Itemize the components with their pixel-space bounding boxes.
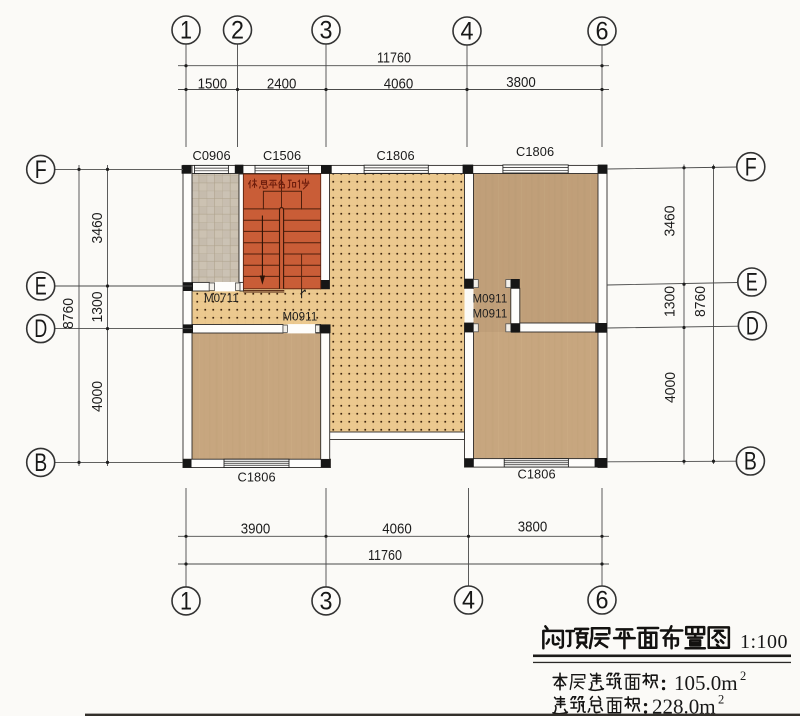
- svg-text:4: 4: [461, 18, 474, 46]
- svg-text:2: 2: [231, 17, 244, 45]
- svg-text:228.0m: 228.0m: [652, 694, 716, 716]
- svg-text:4060: 4060: [382, 521, 412, 538]
- svg-text:C1506: C1506: [263, 148, 301, 163]
- svg-text:C1806: C1806: [518, 467, 556, 482]
- svg-text:C1806: C1806: [516, 144, 554, 159]
- svg-text:1300: 1300: [89, 292, 106, 323]
- svg-text:C1806: C1806: [377, 148, 415, 163]
- svg-text:D: D: [34, 315, 47, 343]
- svg-text:2400: 2400: [267, 75, 297, 92]
- svg-text:4000: 4000: [662, 372, 679, 403]
- svg-text:2: 2: [740, 669, 746, 683]
- svg-text:3800: 3800: [518, 519, 548, 536]
- svg-text:3460: 3460: [662, 206, 679, 237]
- svg-text:8760: 8760: [692, 286, 709, 317]
- svg-text:1300: 1300: [662, 286, 679, 317]
- svg-text:3: 3: [320, 588, 333, 616]
- svg-text:1:100: 1:100: [740, 631, 788, 653]
- svg-text:E: E: [746, 269, 758, 297]
- svg-text:1500: 1500: [198, 75, 228, 92]
- svg-text:3: 3: [320, 17, 333, 45]
- svg-text:11760: 11760: [368, 547, 402, 564]
- svg-text:6: 6: [596, 18, 609, 46]
- svg-text:4: 4: [462, 587, 475, 615]
- svg-text:F: F: [745, 153, 757, 181]
- svg-text:F: F: [35, 156, 47, 184]
- svg-text:M0911: M0911: [283, 312, 318, 324]
- svg-text:E: E: [35, 273, 47, 301]
- svg-text:1: 1: [180, 17, 192, 45]
- svg-text:2: 2: [718, 692, 724, 706]
- svg-text:11760: 11760: [377, 50, 411, 67]
- svg-text:M0911: M0911: [473, 294, 508, 306]
- svg-text:6: 6: [596, 587, 609, 615]
- svg-text:C1806: C1806: [238, 470, 276, 485]
- svg-text:M0911: M0911: [473, 309, 508, 321]
- svg-text:M0711: M0711: [204, 293, 239, 305]
- svg-text:C0906: C0906: [193, 148, 231, 163]
- svg-text:4000: 4000: [89, 381, 106, 412]
- svg-text:3900: 3900: [241, 521, 271, 538]
- svg-text:8760: 8760: [60, 298, 77, 329]
- svg-text:4060: 4060: [384, 75, 414, 92]
- svg-text:1: 1: [180, 588, 192, 616]
- svg-text:3800: 3800: [506, 74, 536, 91]
- svg-text:105.0m: 105.0m: [674, 671, 738, 695]
- svg-text:3460: 3460: [89, 213, 106, 244]
- svg-text:B: B: [34, 449, 47, 477]
- svg-text:B: B: [744, 448, 757, 476]
- svg-text:D: D: [746, 312, 759, 340]
